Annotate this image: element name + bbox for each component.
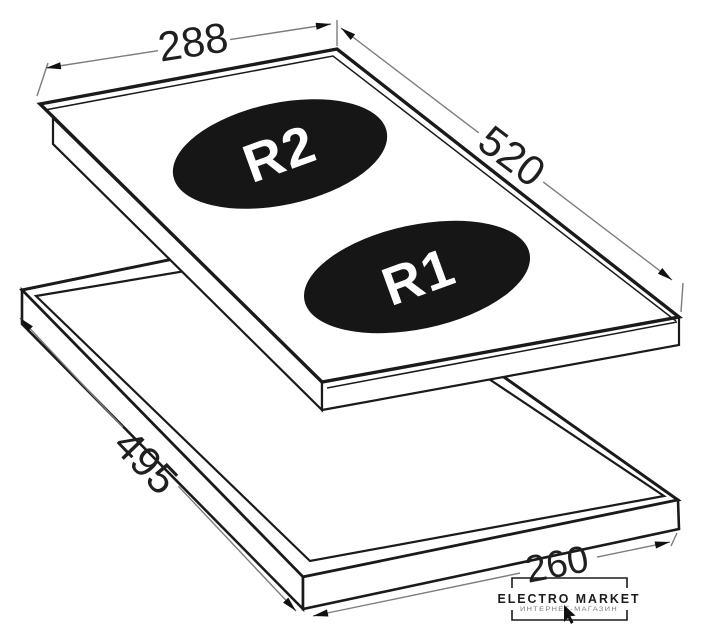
arrowhead [658, 268, 672, 280]
extension-line [681, 283, 683, 312]
arrowhead [313, 609, 328, 616]
cooktop-cutout-diagram: 495 R2 R1 2 [0, 0, 703, 640]
extension-line [671, 533, 677, 546]
arrowhead [341, 28, 355, 40]
electro-market-logo: ELECTRO MARKET ИНТЕРНЕТ-МАГАЗИН [498, 578, 641, 624]
arrowhead [655, 542, 670, 549]
diagram-canvas: 495 R2 R1 2 [0, 0, 703, 640]
dimension-288-label: 288 [155, 13, 232, 70]
logo-title: ELECTRO MARKET [498, 592, 641, 606]
